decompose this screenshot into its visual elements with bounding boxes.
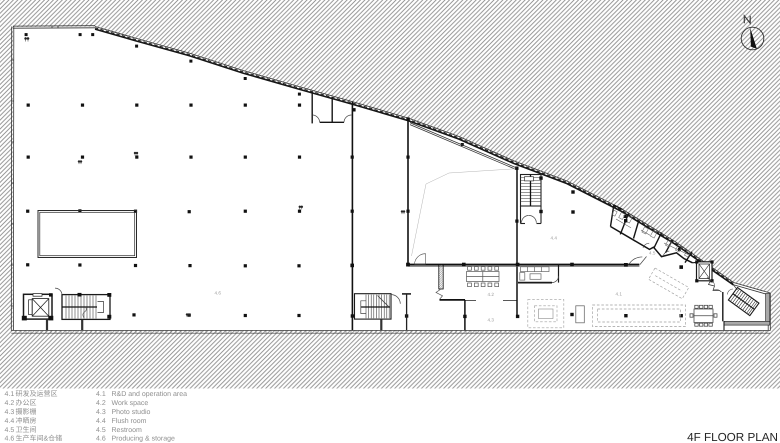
svg-text:Flush room: Flush room (112, 417, 147, 425)
svg-text:4.3: 4.3 (5, 409, 15, 416)
svg-text:4.1: 4.1 (96, 391, 106, 398)
svg-text:4.2: 4.2 (96, 400, 106, 407)
svg-text:4.6: 4.6 (215, 291, 222, 296)
svg-text:4.3: 4.3 (96, 409, 106, 416)
svg-text:4.4: 4.4 (96, 418, 106, 425)
svg-text:生产车间&仓储: 生产车间&仓储 (16, 435, 63, 443)
svg-text:Producing & storage: Producing & storage (112, 435, 176, 443)
svg-text:4.2: 4.2 (5, 400, 15, 407)
svg-text:4.1: 4.1 (5, 391, 15, 398)
svg-text:Photo studio: Photo studio (112, 408, 151, 416)
svg-text:4.4: 4.4 (5, 418, 15, 425)
svg-text:4.3: 4.3 (488, 317, 495, 322)
svg-text:研发及运营区: 研发及运营区 (16, 390, 58, 398)
svg-text:4.1: 4.1 (616, 292, 623, 297)
svg-text:4.5: 4.5 (96, 427, 106, 434)
svg-text:摄影棚: 摄影棚 (16, 408, 37, 416)
svg-text:冲晒房: 冲晒房 (16, 417, 37, 425)
svg-text:4.5: 4.5 (5, 427, 15, 434)
svg-text:4.6: 4.6 (5, 436, 15, 443)
svg-text:4.5: 4.5 (649, 251, 656, 256)
svg-text:4.4: 4.4 (551, 236, 558, 241)
svg-text:Work space: Work space (112, 399, 149, 407)
svg-text:4.2: 4.2 (488, 292, 495, 297)
svg-text:4.6: 4.6 (96, 436, 106, 443)
svg-text:办公区: 办公区 (16, 399, 37, 407)
svg-text:Restroom: Restroom (112, 427, 143, 434)
svg-text:4F FLOOR PLAN: 4F FLOOR PLAN (687, 431, 778, 443)
svg-text:R&D and operation area: R&D and operation area (112, 390, 188, 398)
svg-text:卫生间: 卫生间 (16, 426, 37, 434)
